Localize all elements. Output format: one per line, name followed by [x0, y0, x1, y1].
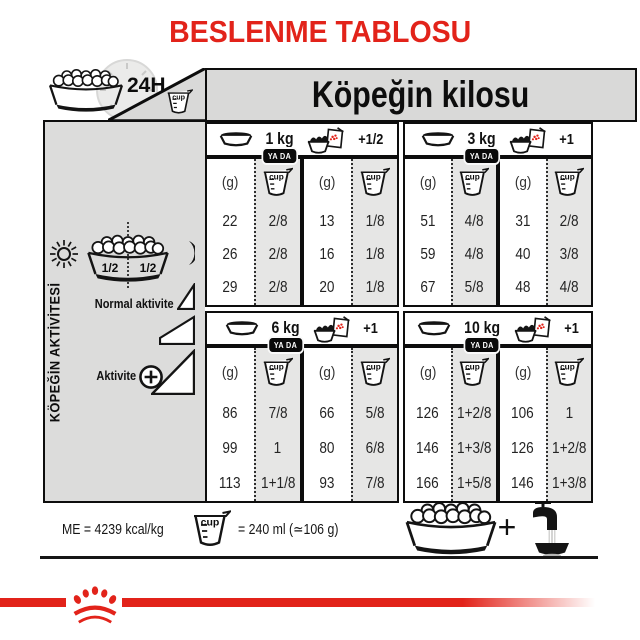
grams-header: (g): [514, 174, 531, 191]
grams-value: 51: [420, 213, 435, 231]
extra-pouch-label: +1: [560, 131, 575, 148]
grams-value: 40: [515, 246, 530, 264]
cup-value: 2/8: [268, 279, 287, 297]
cup-value: 1+2/8: [457, 405, 491, 423]
plus-circle-icon: [138, 364, 164, 390]
cup-value: 7/8: [365, 475, 384, 493]
cup-value: 2/8: [268, 246, 287, 264]
activity-ramp-medium: [159, 315, 195, 345]
weight-label: 10 kg: [464, 319, 500, 337]
grams-header: (g): [222, 174, 239, 191]
footer-divider: [40, 556, 598, 559]
metabolizable-energy-label: ME = 4239 kcal/kg: [62, 522, 212, 538]
wet-pouch-bowl-icon: [512, 316, 554, 344]
activity-sidebar: [43, 120, 205, 503]
dry-bowl-icon: [420, 131, 456, 148]
cup-equivalence-label: = 240 ml (≃106 g): [238, 522, 398, 538]
grams-value: 126: [416, 405, 439, 423]
extra-pouch-label: +1: [564, 320, 579, 337]
dry-bowl-icon: [224, 320, 260, 337]
weight-header-10kg: 10 kg YA DA +1: [403, 311, 593, 346]
food-bowl-icon: [402, 501, 500, 557]
water-tap-icon: [519, 500, 573, 558]
weight-header-1kg: 1 kg YA DA +1/2: [205, 122, 399, 157]
moon-icon: [175, 240, 195, 266]
extra-pouch-label: +1: [364, 320, 379, 337]
grams-value: 20: [320, 279, 335, 297]
cup-value: 1: [274, 440, 282, 458]
cup-value: 1: [565, 405, 573, 423]
dry-bowl-icon: [416, 320, 452, 337]
grams-value: 29: [223, 279, 238, 297]
col-3kg-mixed: (g) 31 40 48 2/8 3/8 4/8: [498, 157, 593, 307]
grams-value: 26: [223, 246, 238, 264]
wet-pouch-bowl-icon: [311, 316, 353, 344]
page-title: BESLENME TABLOSU: [0, 14, 640, 50]
red-line-right: [122, 598, 595, 607]
cup-value: 3/8: [560, 246, 579, 264]
extra-pouch-label: +1/2: [358, 131, 383, 148]
weight-label: 6 kg: [272, 319, 300, 337]
or-badge: YA DA: [465, 338, 498, 352]
measuring-cup-icon: [459, 165, 489, 200]
cup-value: 6/8: [365, 440, 384, 458]
grams-value: 113: [219, 475, 241, 493]
weight-header-band: Köpeğin kilosu: [205, 68, 637, 122]
grams-header: (g): [419, 364, 436, 381]
measuring-cup-icon: [263, 355, 293, 390]
col-3kg-dry: (g) 51 59 67 4/8 4/8 5/8: [403, 157, 498, 307]
measuring-cup-icon: [360, 355, 390, 390]
measuring-cup-icon: [554, 355, 584, 390]
cup-value: 5/8: [465, 279, 484, 297]
cup-value: 1+5/8: [457, 475, 491, 493]
split-bowl-icon: [84, 234, 172, 284]
high-activity-label: Aktivite: [64, 369, 136, 383]
col-10kg-mixed: (g) 106 126 146 1 1+2/8 1+3/8: [498, 346, 593, 503]
cup-value: 1+3/8: [552, 475, 586, 493]
grams-value: 31: [515, 213, 530, 231]
or-badge: YA DA: [263, 149, 296, 163]
sun-icon: [47, 237, 81, 271]
half-ration-right: 1/2: [137, 261, 159, 275]
col-6kg-mixed: (g) 66 80 93 5/8 6/8 7/8: [302, 346, 399, 503]
or-badge: YA DA: [269, 338, 302, 352]
measuring-cup-icon: [263, 165, 293, 200]
or-badge: YA DA: [465, 149, 498, 163]
cup-value: 4/8: [560, 279, 579, 297]
grams-header: (g): [319, 174, 336, 191]
cup-value: 1/8: [365, 246, 384, 264]
col-10kg-dry: (g) 126 146 166 1+2/8 1+3/8 1+5/8: [403, 346, 498, 503]
grams-header: (g): [419, 174, 436, 191]
col-1kg-mixed: (g) 13 16 20 1/8 1/8 1/8: [302, 157, 399, 307]
col-1kg-dry: (g) 22 26 29 2/8 2/8 2/8: [205, 157, 302, 307]
grams-value: 166: [416, 475, 439, 493]
cup-value: 4/8: [465, 246, 484, 264]
sidebar-title: KÖPEĞİN AKTİVİTESİ: [48, 272, 65, 434]
grams-value: 67: [420, 279, 435, 297]
measuring-cup-icon: [193, 505, 231, 553]
dry-bowl-icon: [218, 131, 254, 148]
half-ration-left: 1/2: [99, 261, 121, 275]
grams-value: 59: [420, 246, 435, 264]
grams-header: (g): [319, 364, 336, 381]
grams-value: 106: [511, 405, 534, 423]
plus-sign: +: [493, 509, 521, 545]
measuring-cup-icon: [360, 165, 390, 200]
weight-label: 3 kg: [468, 130, 496, 148]
cup-value: 1+1/8: [261, 475, 295, 493]
weight-header-6kg: 6 kg YA DA +1: [205, 311, 399, 346]
grams-value: 86: [223, 405, 238, 423]
grams-value: 13: [320, 213, 335, 231]
cup-value: 7/8: [268, 405, 287, 423]
feeding-table-page: cup: [0, 0, 640, 640]
cup-value: 4/8: [465, 213, 484, 231]
cup-value: 1+3/8: [457, 440, 491, 458]
activity-ramp-small: [177, 283, 195, 310]
weight-header-3kg: 3 kg YA DA +1: [403, 122, 593, 157]
grams-value: 48: [515, 279, 530, 297]
grams-value: 22: [223, 213, 238, 231]
cup-value: 1+2/8: [552, 440, 586, 458]
grams-value: 126: [511, 440, 534, 458]
grams-value: 99: [223, 440, 238, 458]
grams-value: 146: [416, 440, 439, 458]
grams-value: 16: [320, 246, 335, 264]
grams-value: 93: [320, 475, 335, 493]
normal-activity-label: Normal aktivite: [72, 297, 174, 311]
grams-header: (g): [222, 364, 239, 381]
grams-value: 80: [320, 440, 335, 458]
measuring-cup-icon: [554, 165, 584, 200]
grams-value: 146: [511, 475, 534, 493]
brand-crown-logo-icon: [70, 583, 120, 628]
measuring-cup-icon: [167, 86, 193, 118]
cup-value: 2/8: [560, 213, 579, 231]
weight-label: 1 kg: [266, 130, 294, 148]
grams-value: 66: [320, 405, 335, 423]
grams-header: (g): [514, 364, 531, 381]
cup-value: 5/8: [365, 405, 384, 423]
weight-title: Köpeğin kilosu: [312, 74, 529, 116]
cup-value: 1/8: [365, 279, 384, 297]
wet-pouch-bowl-icon: [507, 127, 549, 155]
cup-value: 2/8: [268, 213, 287, 231]
col-6kg-dry: (g) 86 99 113 7/8 1 1+1/8: [205, 346, 302, 503]
red-line-left: [0, 598, 66, 607]
cup-value: 1/8: [365, 213, 384, 231]
measuring-cup-icon: [459, 355, 489, 390]
wet-pouch-bowl-icon: [305, 127, 347, 155]
